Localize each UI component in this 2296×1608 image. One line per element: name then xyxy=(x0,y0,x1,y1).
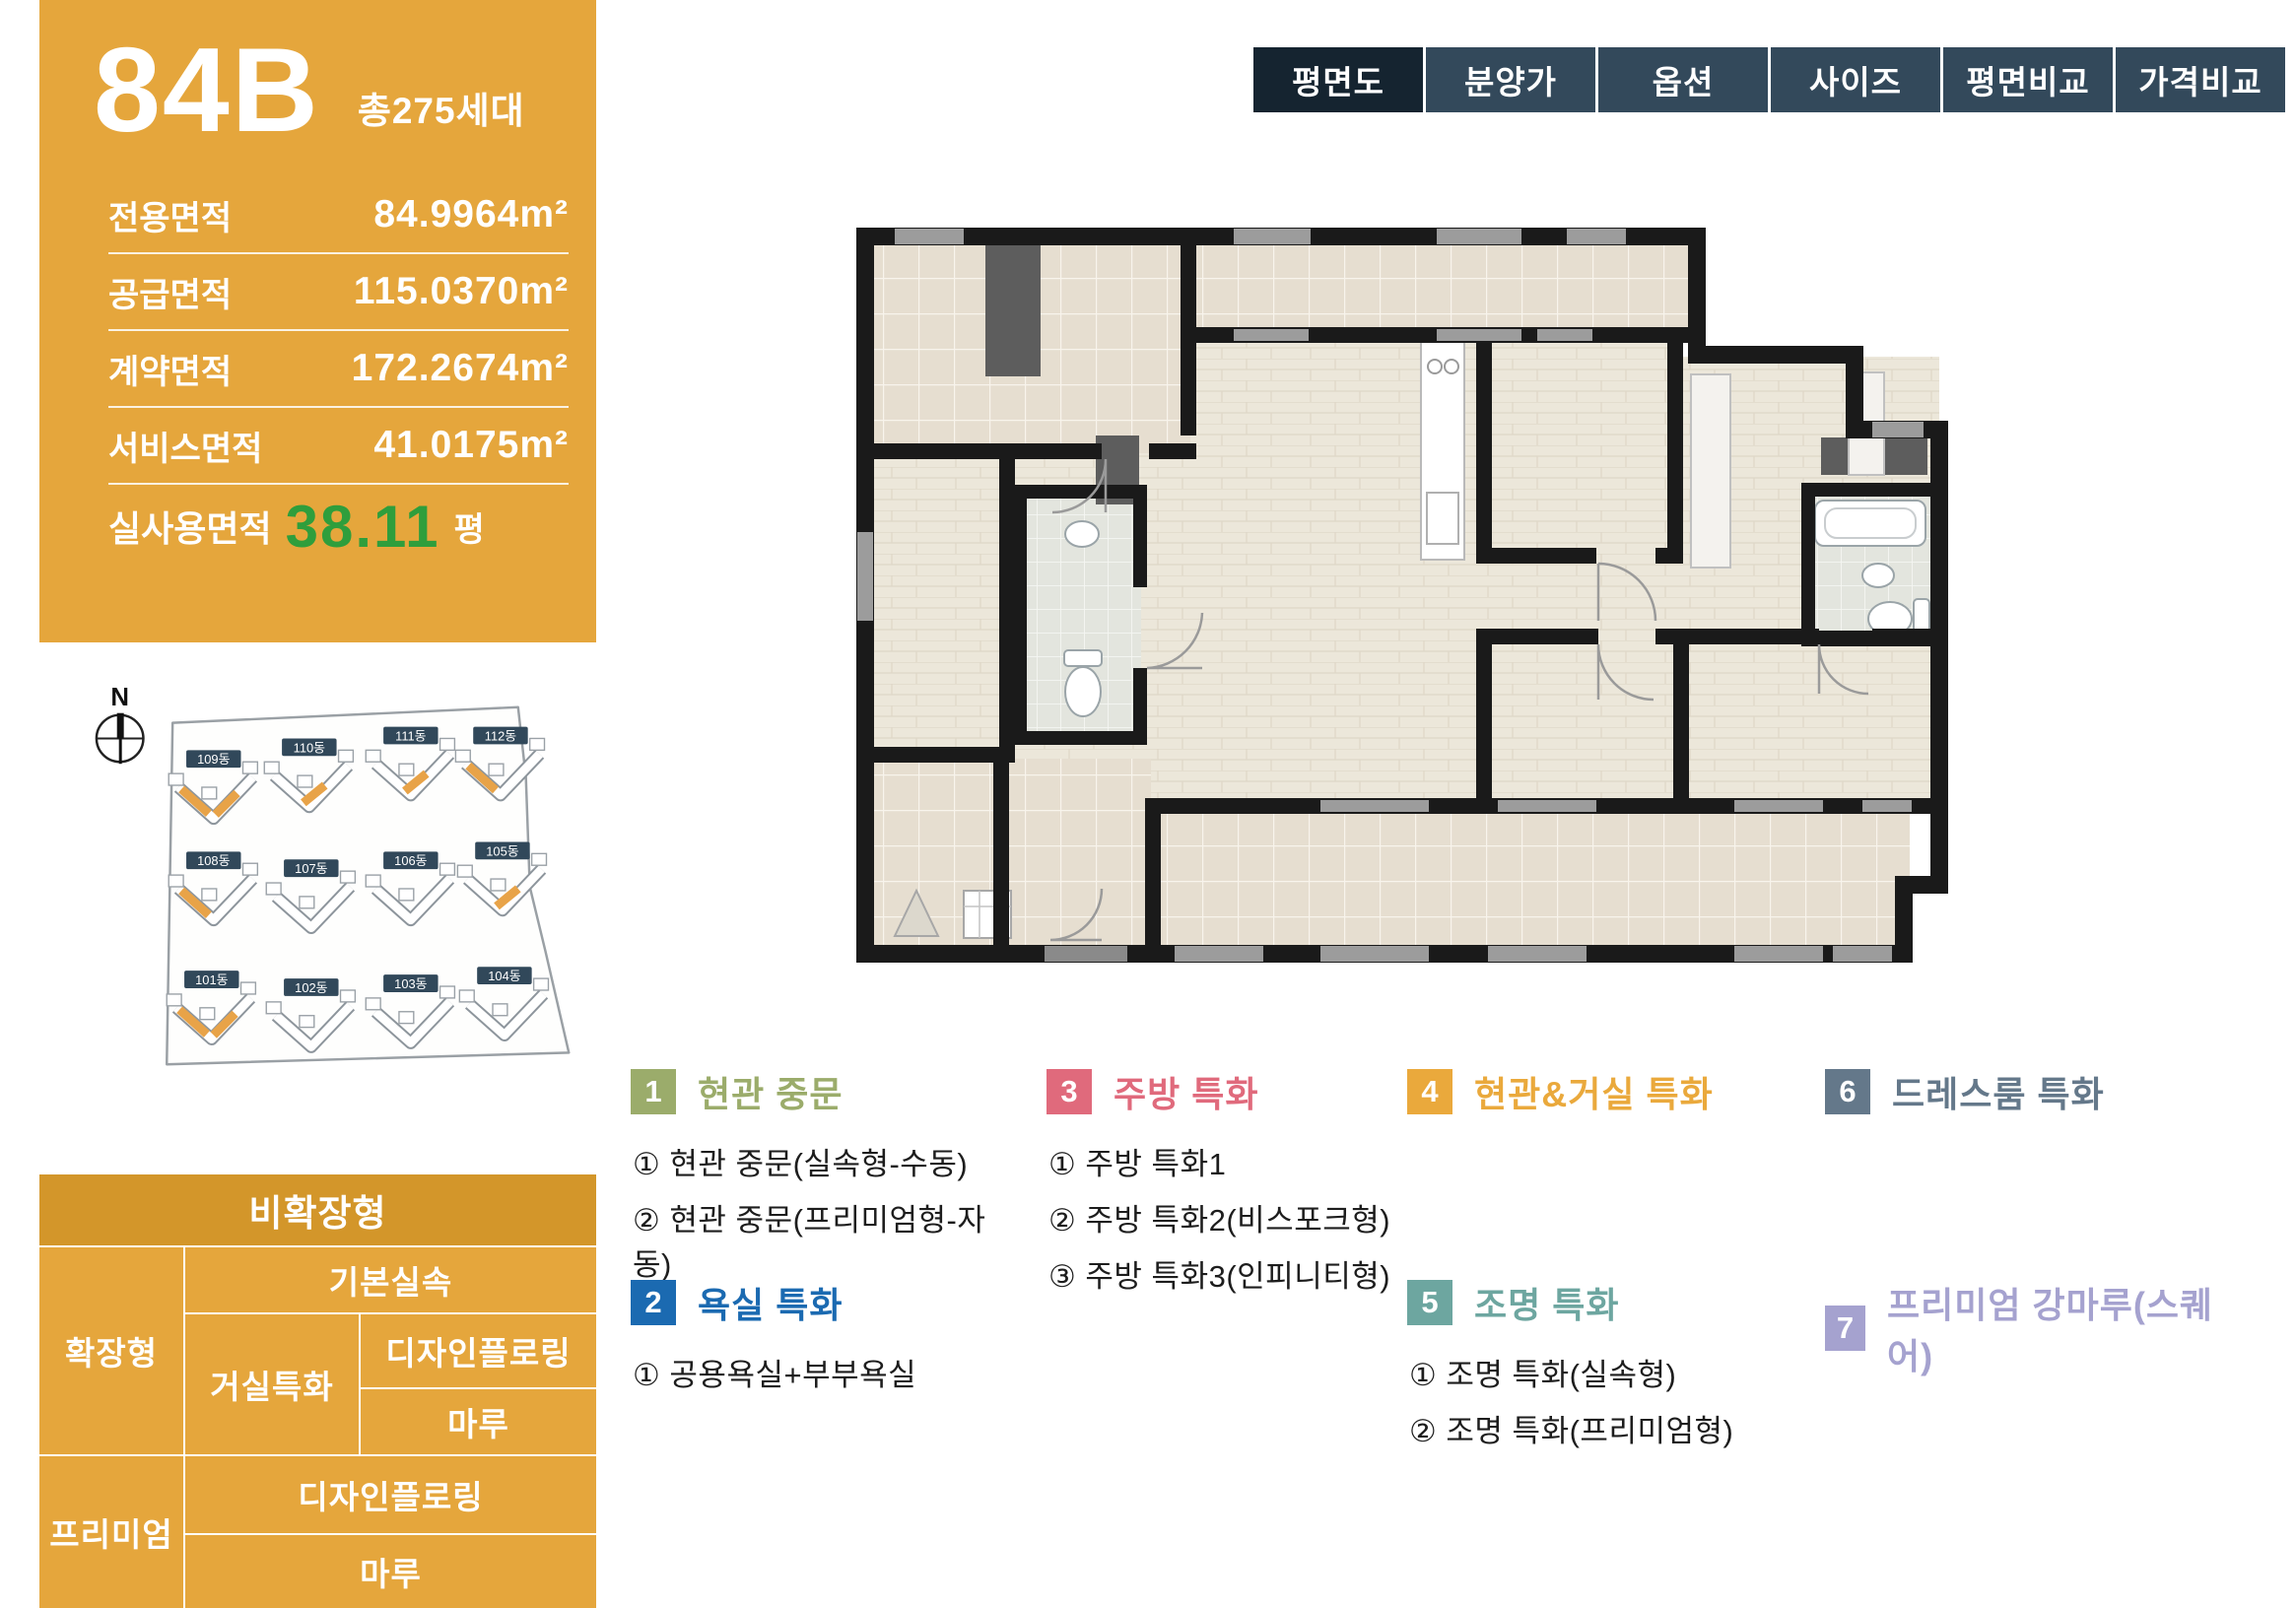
feature-title: 현관 중문 xyxy=(698,1066,843,1117)
area-row: 공급면적 115.0370m² xyxy=(108,252,569,329)
feature-item: ③ 주방 특화3(인피니티형) xyxy=(1048,1251,1441,1296)
feature-item: ① 주방 특화1 xyxy=(1048,1139,1441,1183)
svg-text:105동: 105동 xyxy=(486,843,518,858)
svg-text:112동: 112동 xyxy=(485,728,517,743)
feature-title: 프리미엄 강마루(스퀘어) xyxy=(1887,1277,2219,1379)
view-tabs: 평면도분양가옵션사이즈평면비교가격비교 xyxy=(1253,47,2285,112)
feature-section-6: 6드레스룸 특화 xyxy=(1825,1066,2219,1117)
feature-number-badge: 5 xyxy=(1407,1280,1452,1325)
feature-section-7: 7프리미엄 강마루(스퀘어) xyxy=(1825,1277,2219,1379)
svg-text:109동: 109동 xyxy=(197,752,230,767)
svg-text:111동: 111동 xyxy=(395,728,427,743)
feature-title: 현관&거실 특화 xyxy=(1474,1066,1714,1117)
tab-4[interactable]: 사이즈 xyxy=(1768,47,1940,112)
area-label: 공급면적 xyxy=(108,268,281,316)
svg-text:N: N xyxy=(110,684,129,711)
option-cell: 디자인플로링 xyxy=(361,1314,596,1387)
tab-6[interactable]: 가격비교 xyxy=(2113,47,2285,112)
feature-number-badge: 2 xyxy=(631,1280,676,1325)
area-row: 서비스면적 41.0175m² xyxy=(108,406,569,483)
area-value: 115.0370m² xyxy=(354,270,569,313)
floor-plan-image xyxy=(847,207,1971,985)
unit-total-households: 총275세대 xyxy=(358,81,525,150)
site-map: N 109동110동111동112동108동107동106동105동101동10… xyxy=(89,680,596,1094)
feature-item: ① 조명 특화(실속형) xyxy=(1409,1350,1801,1394)
area-row: 계약면적 172.2674m² xyxy=(108,329,569,406)
area-value: 84.9964m² xyxy=(373,193,569,236)
feature-item: ② 조명 특화(프리미엄형) xyxy=(1409,1406,1801,1450)
actual-area-label: 실사용면적 xyxy=(108,501,272,552)
feature-item: ② 주방 특화2(비스포크형) xyxy=(1048,1195,1441,1239)
svg-text:110동: 110동 xyxy=(294,740,326,755)
tab-5[interactable]: 평면비교 xyxy=(1940,47,2113,112)
feature-section-4: 4현관&거실 특화 xyxy=(1407,1066,1801,1117)
feature-item: ① 공용욕실+부부욕실 xyxy=(633,1350,1025,1394)
floor-plan-svg xyxy=(847,207,1971,985)
actual-area-value: 38.11 xyxy=(286,493,440,561)
feature-title: 드레스룸 특화 xyxy=(1892,1066,2105,1117)
tab-2[interactable]: 분양가 xyxy=(1423,47,1595,112)
compass-icon: N xyxy=(97,684,144,764)
svg-text:107동: 107동 xyxy=(295,861,327,876)
feature-item: ① 현관 중문(실속형-수동) xyxy=(633,1139,1025,1183)
option-cell: 마루 xyxy=(185,1535,596,1608)
area-value: 41.0175m² xyxy=(373,424,569,467)
feature-section-2: 2욕실 특화① 공용욕실+부부욕실 xyxy=(631,1277,1025,1394)
feature-section-1: 1현관 중문① 현관 중문(실속형-수동)② 현관 중문(프리미엄형-자동) xyxy=(631,1066,1025,1284)
unit-name: 84B xyxy=(94,30,320,150)
svg-text:101동: 101동 xyxy=(195,972,228,987)
option-cell-group1: 확장형 xyxy=(39,1247,183,1454)
feature-number-badge: 4 xyxy=(1407,1069,1452,1114)
feature-title: 욕실 특화 xyxy=(698,1277,843,1328)
option-cell: 기본실속 xyxy=(185,1247,596,1312)
tab-3[interactable]: 옵션 xyxy=(1595,47,1768,112)
area-value: 172.2674m² xyxy=(352,347,569,390)
option-cell: 마루 xyxy=(361,1389,596,1454)
option-table-header: 비확장형 xyxy=(39,1174,596,1245)
feature-item: ② 현관 중문(프리미엄형-자동) xyxy=(633,1195,1025,1284)
actual-area-row: 실사용면적 38.11 평 xyxy=(108,483,569,568)
feature-section-3: 3주방 특화① 주방 특화1② 주방 특화2(비스포크형)③ 주방 특화3(인피… xyxy=(1047,1066,1441,1296)
option-cell: 디자인플로링 xyxy=(185,1456,596,1533)
area-table: 전용면적 84.9964m² 공급면적 115.0370m² 계약면적 172.… xyxy=(39,177,596,568)
feature-number-badge: 1 xyxy=(631,1069,676,1114)
feature-section-5: 5조명 특화① 조명 특화(실속형)② 조명 특화(프리미엄형) xyxy=(1407,1277,1801,1450)
option-table: 비확장형 확장형 기본실속 거실특화 디자인플로링 마루 프리미엄 디자인플로링… xyxy=(39,1174,596,1608)
area-label: 계약면적 xyxy=(108,345,281,393)
unit-header: 84B 총275세대 xyxy=(39,0,596,150)
area-label: 서비스면적 xyxy=(108,422,281,470)
unit-info-panel: 84B 총275세대 전용면적 84.9964m² 공급면적 115.0370m… xyxy=(39,0,596,642)
svg-text:106동: 106동 xyxy=(394,853,427,868)
svg-text:108동: 108동 xyxy=(197,853,230,868)
actual-area-unit: 평 xyxy=(453,502,484,551)
svg-text:103동: 103동 xyxy=(394,976,427,991)
svg-text:104동: 104동 xyxy=(488,969,520,983)
feature-title: 조명 특화 xyxy=(1474,1277,1619,1328)
tab-1[interactable]: 평면도 xyxy=(1253,47,1423,112)
area-label: 전용면적 xyxy=(108,191,281,239)
option-cell-group2: 프리미엄 xyxy=(39,1456,183,1608)
feature-title: 주방 특화 xyxy=(1114,1066,1258,1117)
feature-number-badge: 3 xyxy=(1047,1069,1092,1114)
feature-number-badge: 6 xyxy=(1825,1069,1870,1114)
feature-number-badge: 7 xyxy=(1825,1306,1865,1351)
site-map-svg: N 109동110동111동112동108동107동106동105동101동10… xyxy=(89,680,596,1094)
option-cell-row2-label: 거실특화 xyxy=(185,1314,359,1454)
area-row: 전용면적 84.9964m² xyxy=(108,177,569,252)
svg-text:102동: 102동 xyxy=(295,980,327,995)
